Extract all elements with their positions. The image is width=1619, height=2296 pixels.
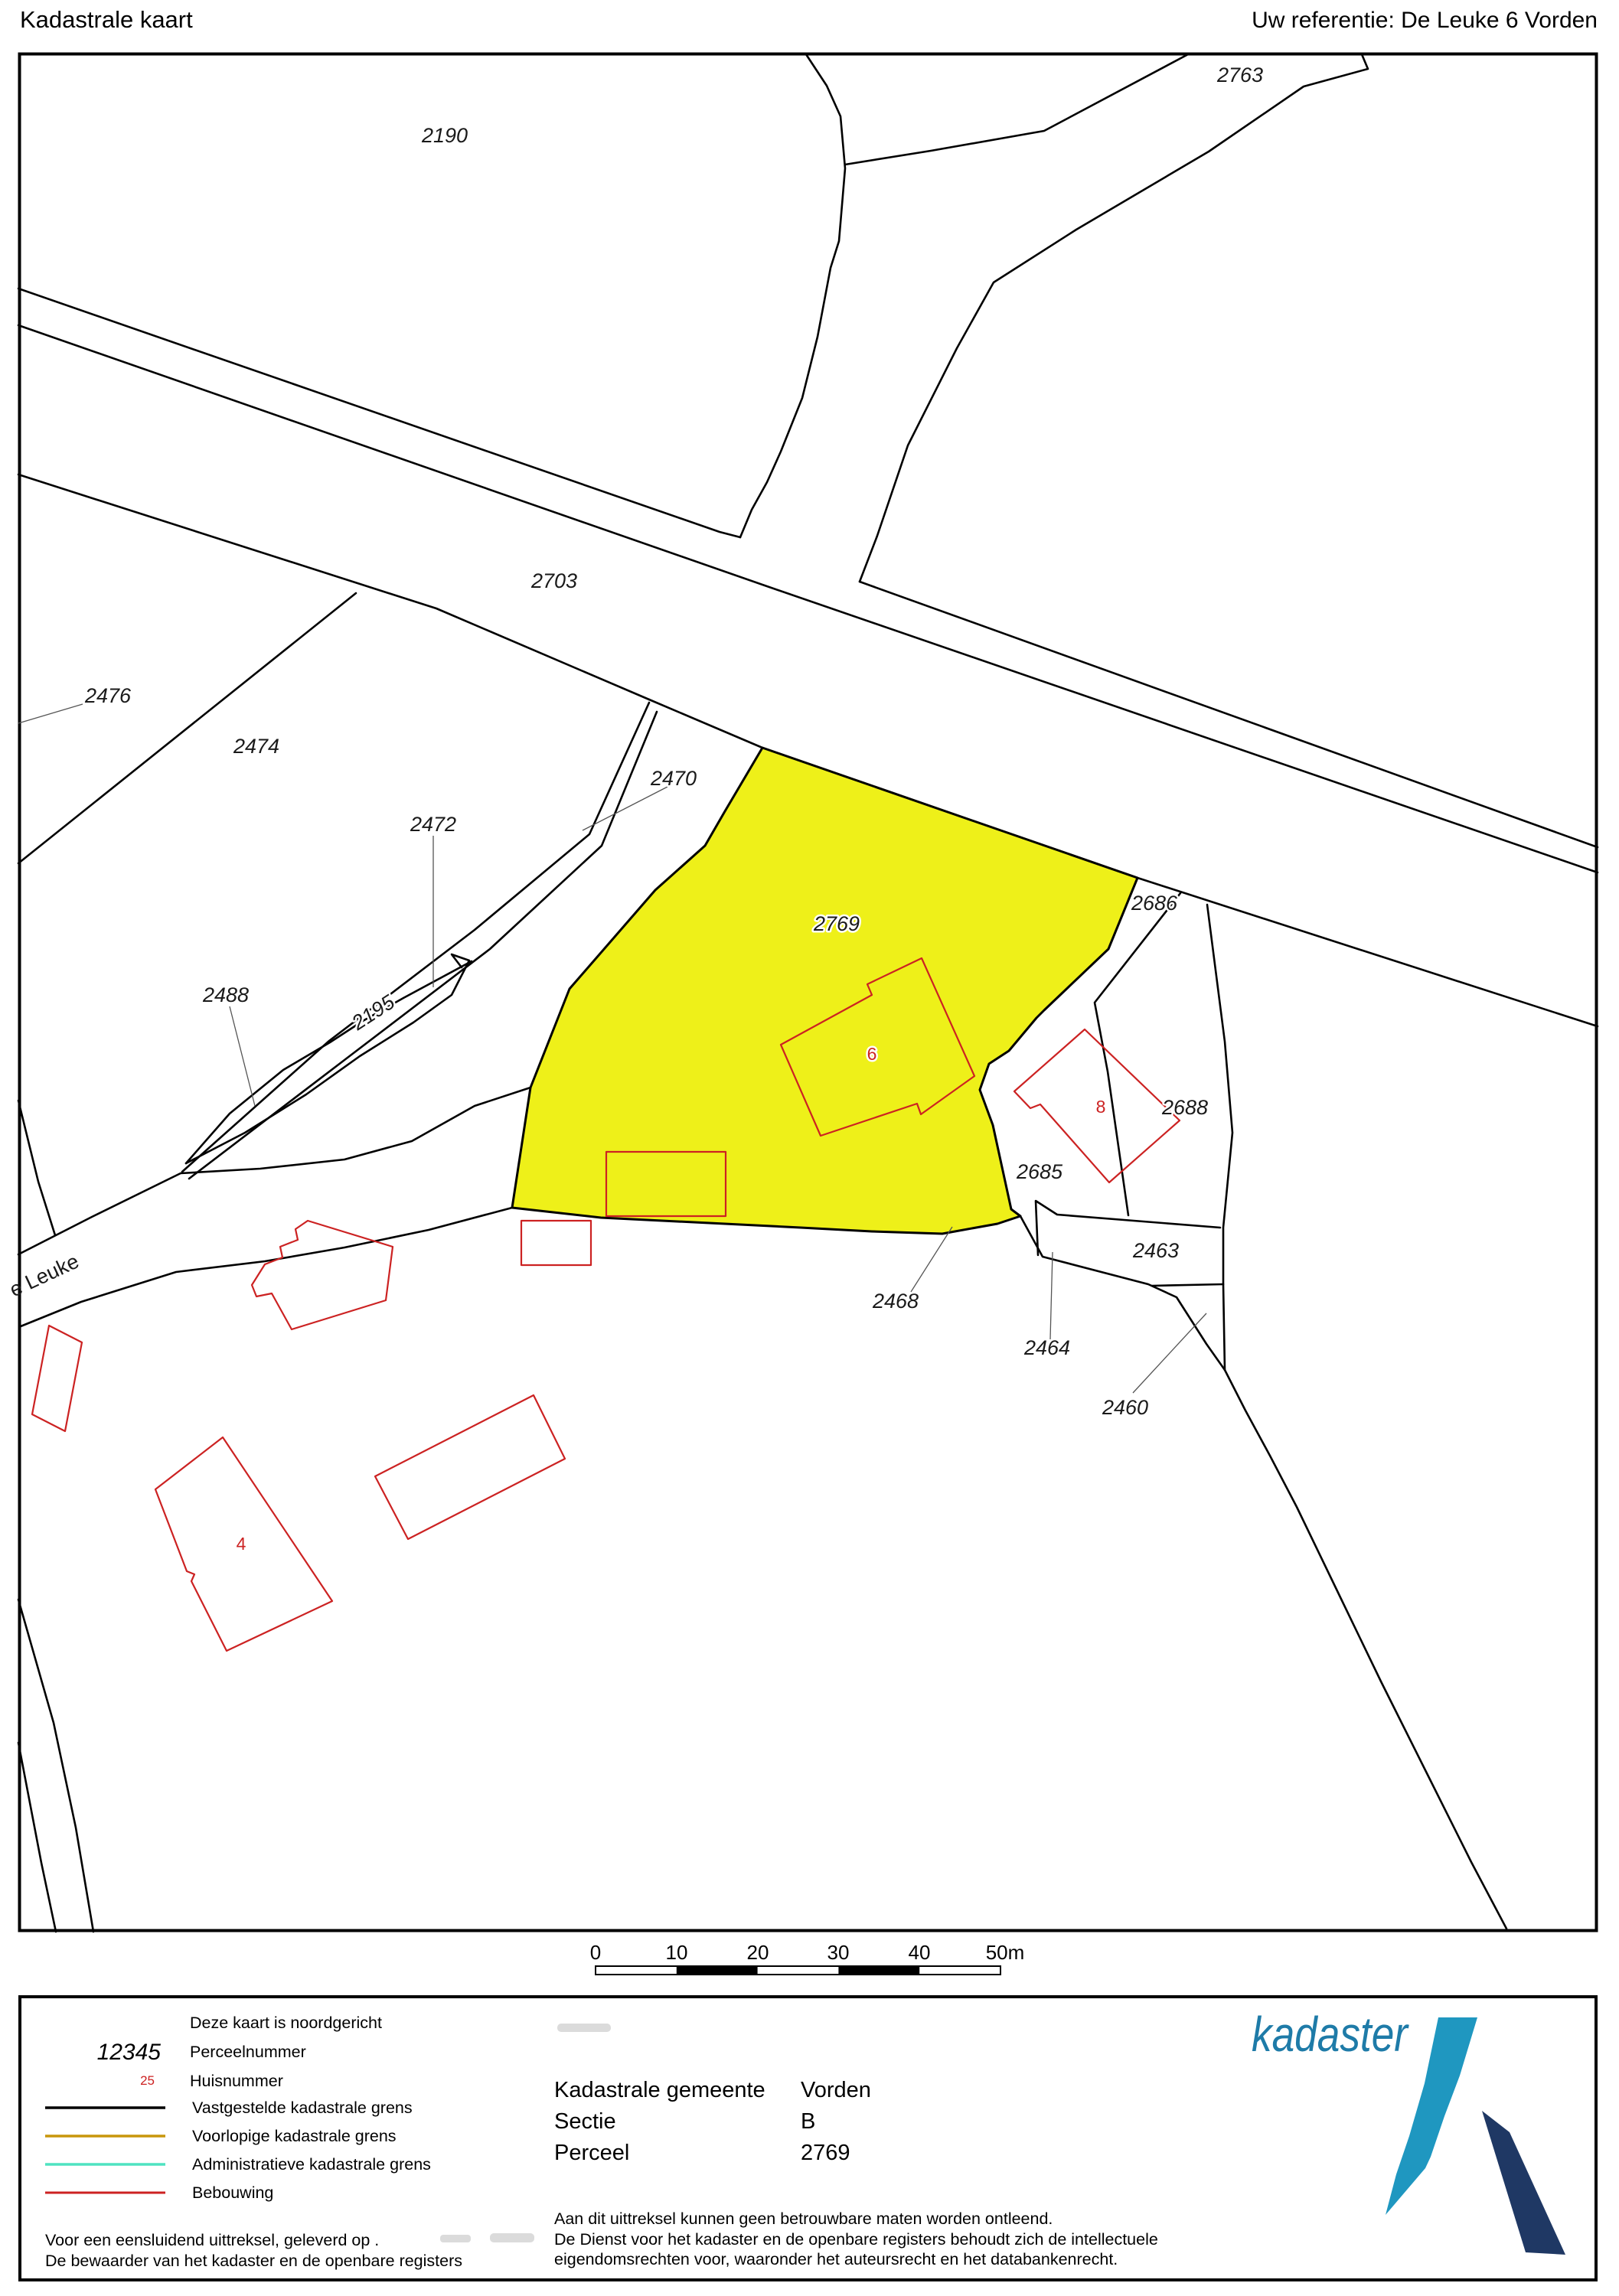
svg-text:2769: 2769	[801, 2141, 850, 2165]
svg-text:e Leuke: e Leuke	[6, 1250, 83, 1302]
svg-text:Kadastrale gemeente: Kadastrale gemeente	[554, 2078, 765, 2102]
svg-text:2686: 2686	[1131, 892, 1178, 915]
svg-text:25: 25	[140, 2073, 155, 2088]
svg-text:eigendomsrechten voor, waarond: eigendomsrechten voor, waaronder het aut…	[554, 2250, 1118, 2268]
svg-text:Vastgestelde kadastrale grens: Vastgestelde kadastrale grens	[192, 2099, 413, 2117]
svg-text:Voorlopige kadastrale grens: Voorlopige kadastrale grens	[192, 2127, 397, 2145]
svg-text:Deze kaart is noordgericht: Deze kaart is noordgericht	[190, 2014, 382, 2032]
svg-text:Huisnummer: Huisnummer	[190, 2072, 283, 2090]
svg-text:Bebouwing: Bebouwing	[192, 2183, 273, 2202]
svg-text:2476: 2476	[84, 684, 132, 707]
svg-text:2460: 2460	[1102, 1396, 1148, 1419]
svg-text:0: 0	[590, 1941, 601, 1964]
svg-text:2470: 2470	[650, 767, 697, 790]
svg-text:4: 4	[237, 1534, 246, 1554]
svg-text:2769: 2769	[813, 912, 860, 935]
svg-text:De Dienst voor het kadaster en: De Dienst voor het kadaster en de openba…	[554, 2230, 1158, 2249]
svg-text:2763: 2763	[1216, 64, 1263, 86]
svg-text:2190: 2190	[421, 124, 468, 147]
svg-text:Uw referentie: De Leuke 6 Vord: Uw referentie: De Leuke 6 Vorden	[1252, 8, 1598, 33]
svg-text:Kadastrale kaart: Kadastrale kaart	[20, 6, 193, 33]
svg-text:50m: 50m	[986, 1941, 1025, 1964]
svg-text:Voor een eensluidend uittrekse: Voor een eensluidend uittreksel, gelever…	[45, 2231, 379, 2249]
svg-text:2488: 2488	[202, 983, 249, 1006]
svg-text:Perceelnummer: Perceelnummer	[190, 2043, 306, 2061]
svg-text:kadaster: kadaster	[1252, 2007, 1409, 2062]
svg-text:20: 20	[747, 1941, 769, 1964]
svg-text:10: 10	[666, 1941, 688, 1964]
svg-text:12345: 12345	[97, 2040, 162, 2065]
svg-text:2685: 2685	[1016, 1160, 1063, 1183]
svg-text:2472: 2472	[410, 813, 456, 836]
svg-text:30: 30	[827, 1941, 850, 1964]
svg-text:2195: 2195	[347, 990, 399, 1035]
svg-text:Aan dit uittreksel kunnen geen: Aan dit uittreksel kunnen geen betrouwba…	[554, 2210, 1053, 2228]
svg-text:Perceel: Perceel	[554, 2141, 629, 2165]
svg-text:40: 40	[909, 1941, 931, 1964]
svg-text:2464: 2464	[1023, 1336, 1070, 1359]
svg-text:Sectie: Sectie	[554, 2109, 616, 2134]
svg-text:2463: 2463	[1132, 1239, 1179, 1262]
svg-text:Vorden: Vorden	[801, 2078, 871, 2102]
svg-text:6: 6	[867, 1044, 877, 1064]
svg-text:De bewaarder van het kadaster: De bewaarder van het kadaster en de open…	[45, 2252, 462, 2270]
svg-text:8: 8	[1096, 1097, 1106, 1117]
svg-text:2688: 2688	[1161, 1096, 1208, 1119]
svg-text:2703: 2703	[530, 569, 577, 592]
svg-text:2474: 2474	[233, 735, 279, 758]
svg-text:B: B	[801, 2109, 815, 2134]
svg-text:Administratieve kadastrale gre: Administratieve kadastrale grens	[192, 2155, 431, 2174]
svg-text:2468: 2468	[872, 1290, 919, 1313]
